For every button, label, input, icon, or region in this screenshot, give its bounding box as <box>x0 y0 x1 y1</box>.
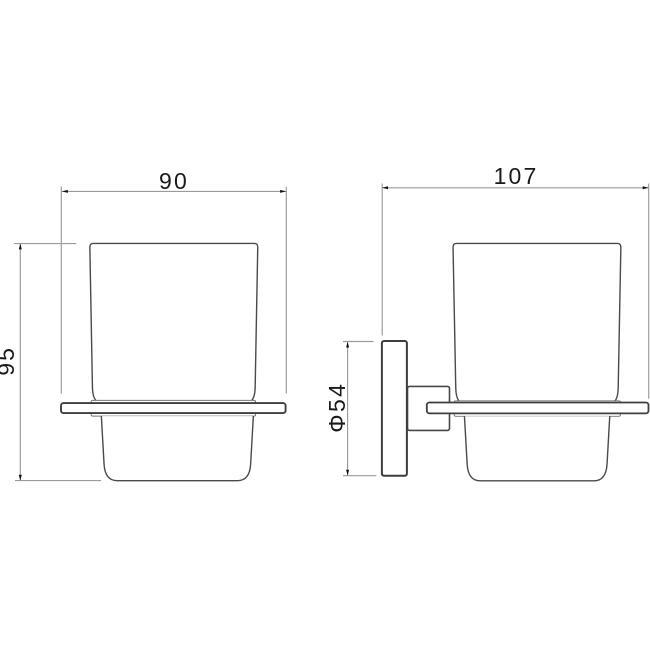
svg-text:90: 90 <box>159 168 189 194</box>
svg-text:107: 107 <box>494 163 539 189</box>
svg-text:Φ54: Φ54 <box>324 382 350 433</box>
svg-text:95: 95 <box>0 346 19 376</box>
